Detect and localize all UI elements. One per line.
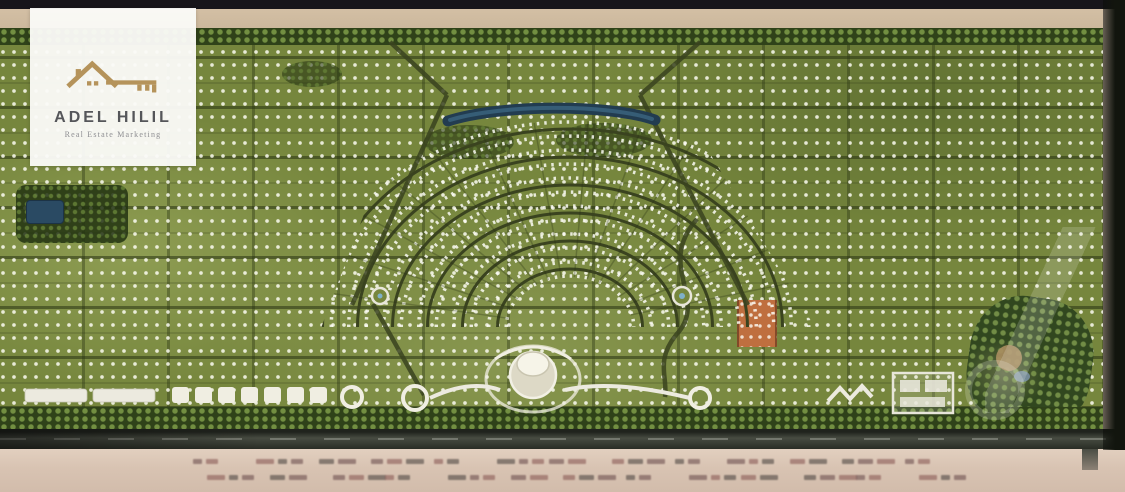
diagonal-roads	[352, 42, 748, 395]
masterplan-screenshot: ADEL HILIL Real Estate Marketing	[0, 0, 1125, 492]
brand-watermark-card: ADEL HILIL Real Estate Marketing	[30, 8, 196, 166]
brand-tagline: Real Estate Marketing	[65, 130, 162, 139]
mosque-dome-landmark	[486, 346, 580, 412]
access-road-stub	[1082, 449, 1098, 470]
brand-name: ADEL HILIL	[54, 109, 172, 127]
lagoon	[448, 108, 655, 121]
faint-watermark-ring	[965, 360, 1025, 420]
roundabouts	[372, 287, 691, 305]
bottom-sand-apron	[0, 449, 1125, 492]
highway-shadow	[0, 429, 260, 451]
house-key-logo-icon	[61, 50, 165, 102]
right-dark-band	[1103, 0, 1125, 450]
amenity-buildings-row	[25, 386, 872, 410]
right-facility-compound	[893, 373, 953, 413]
